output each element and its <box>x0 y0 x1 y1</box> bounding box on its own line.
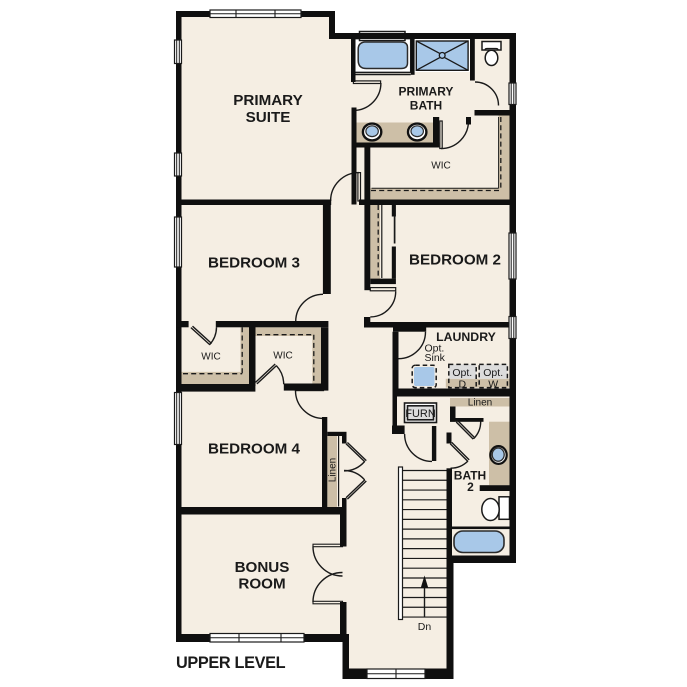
svg-text:Opt.: Opt. <box>483 367 503 379</box>
svg-text:FURN: FURN <box>405 408 436 420</box>
svg-text:WIC: WIC <box>431 161 450 172</box>
svg-text:LAUNDRY: LAUNDRY <box>436 330 496 344</box>
svg-text:Dn: Dn <box>418 621 432 633</box>
svg-text:Opt.: Opt. <box>452 367 472 379</box>
svg-text:BATH: BATH <box>410 99 442 113</box>
svg-text:BEDROOM 4: BEDROOM 4 <box>208 441 301 458</box>
svg-text:SUITE: SUITE <box>246 109 291 126</box>
svg-text:W: W <box>488 379 498 391</box>
svg-text:WIC: WIC <box>273 351 292 362</box>
svg-text:D: D <box>459 379 467 391</box>
svg-text:WIC: WIC <box>201 352 220 363</box>
svg-text:BEDROOM 3: BEDROOM 3 <box>208 255 300 272</box>
svg-text:PRIMARY: PRIMARY <box>399 85 454 99</box>
svg-text:ROOM: ROOM <box>238 576 285 593</box>
svg-text:PRIMARY: PRIMARY <box>233 92 302 109</box>
svg-text:BONUS: BONUS <box>235 559 290 576</box>
svg-text:2: 2 <box>467 480 474 494</box>
svg-text:UPPER LEVEL: UPPER LEVEL <box>176 654 286 672</box>
svg-text:Linen: Linen <box>468 398 492 409</box>
svg-text:BEDROOM 2: BEDROOM 2 <box>409 252 501 269</box>
svg-text:Linen: Linen <box>328 458 339 482</box>
svg-text:Sink: Sink <box>425 352 446 364</box>
